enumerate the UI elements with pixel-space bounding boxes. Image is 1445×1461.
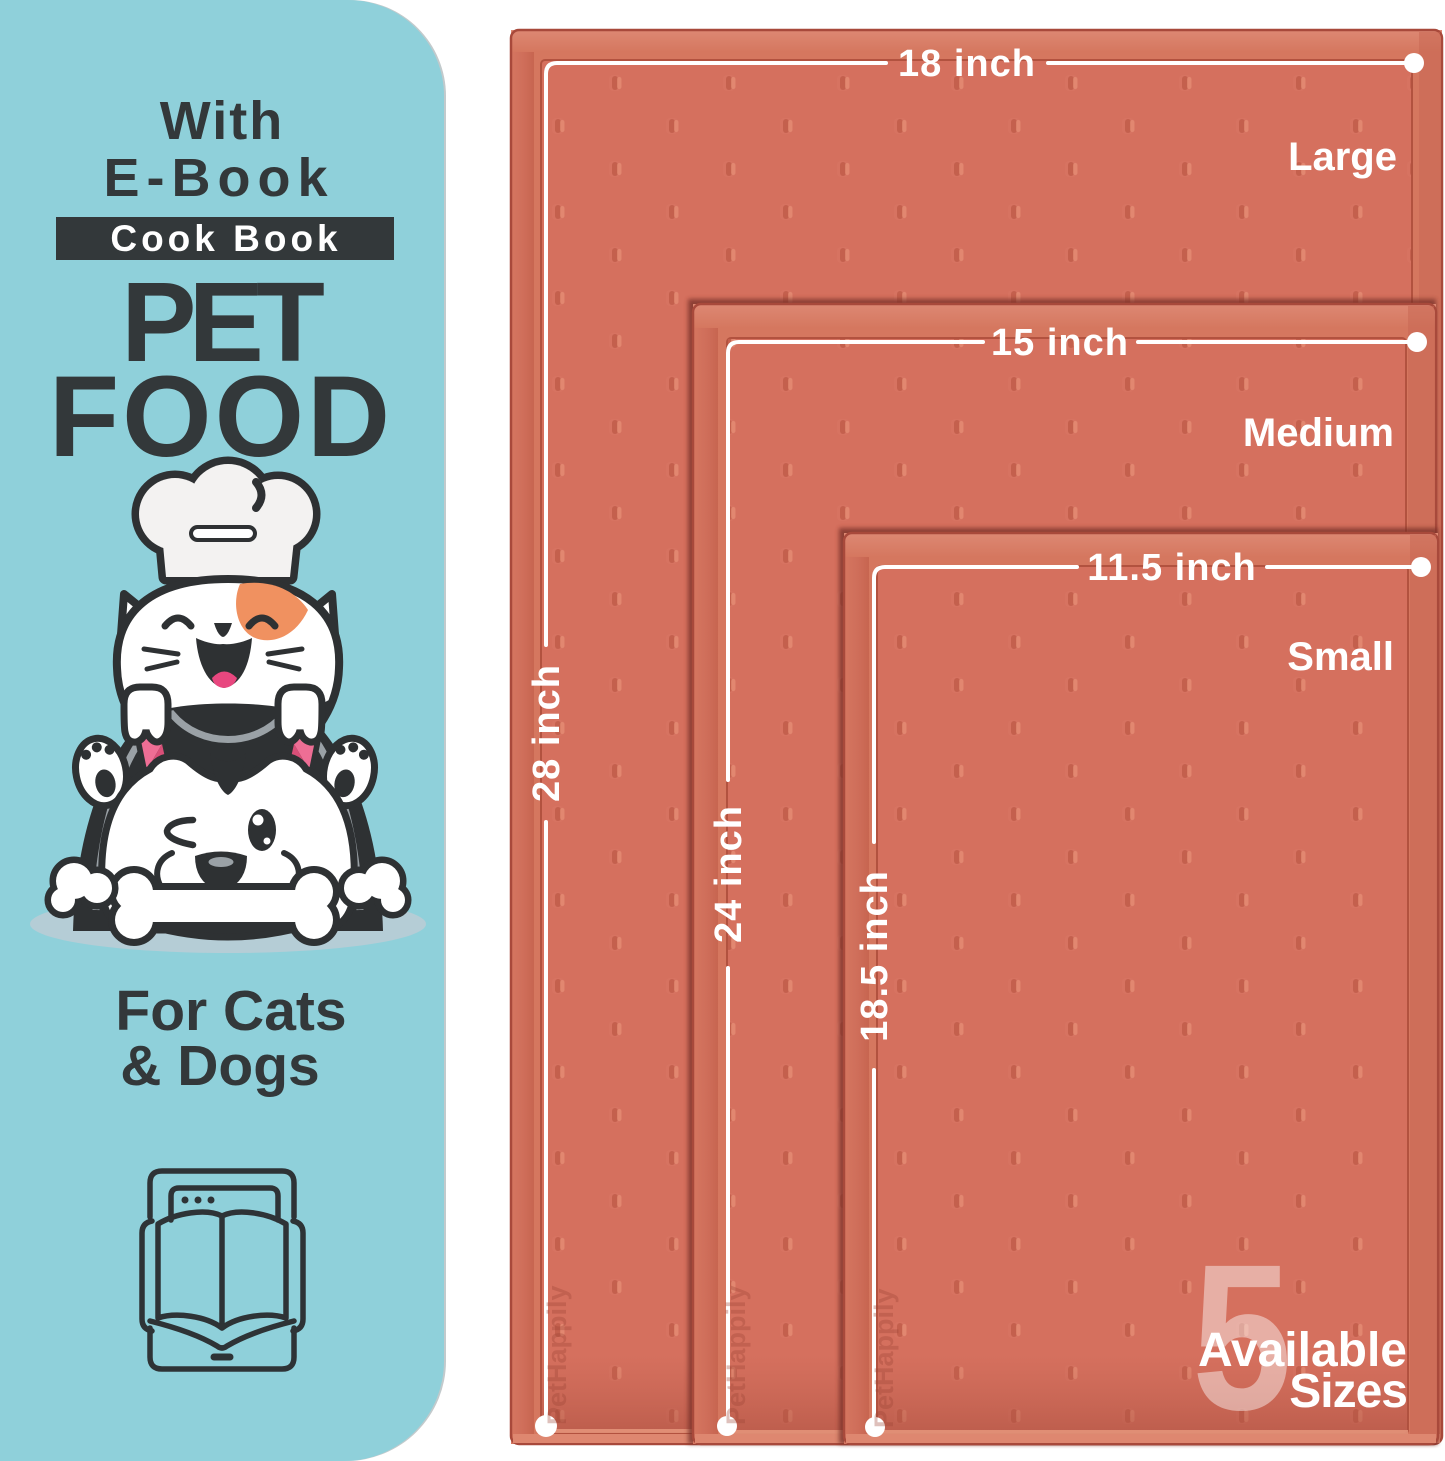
svg-text:18 inch: 18 inch xyxy=(898,43,1036,85)
svg-text:Sizes: Sizes xyxy=(1289,1365,1407,1418)
svg-text:Small: Small xyxy=(1287,635,1394,679)
svg-text:15 inch: 15 inch xyxy=(991,322,1129,364)
svg-text:18.5 inch: 18.5 inch xyxy=(854,870,896,1042)
svg-text:Large: Large xyxy=(1288,135,1397,179)
svg-text:28 inch: 28 inch xyxy=(526,664,568,802)
svg-text:11.5 inch: 11.5 inch xyxy=(1087,547,1257,589)
svg-text:PetHappily: PetHappily xyxy=(721,1285,751,1425)
svg-text:PetHappily: PetHappily xyxy=(542,1285,572,1425)
svg-text:Medium: Medium xyxy=(1243,411,1394,455)
svg-text:24 inch: 24 inch xyxy=(708,805,750,943)
svg-text:PetHappily: PetHappily xyxy=(869,1288,899,1428)
